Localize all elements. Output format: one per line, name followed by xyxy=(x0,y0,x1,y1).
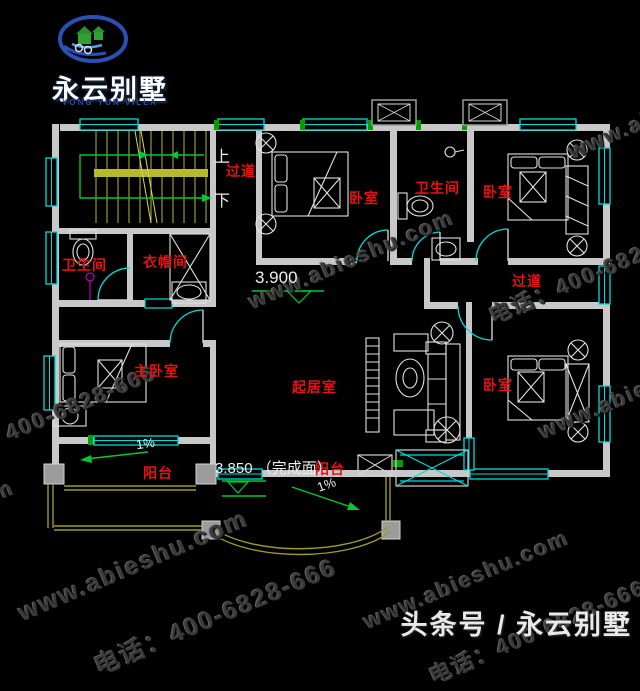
room-label-corridor-top: 过道 xyxy=(226,161,256,181)
level-mark-balcony: 3.850 （完成面） xyxy=(215,457,332,478)
vent-boxes xyxy=(358,450,468,486)
room-label-living-room: 起居室 xyxy=(292,377,337,397)
brand-logo: 永云别墅 YONG YUN VILLA xyxy=(30,10,190,110)
logo-emblem-icon xyxy=(30,10,190,68)
screenshot-canvas: www.abieshu.com 电话：400-6828-666 电话：400-6… xyxy=(0,0,640,643)
doors xyxy=(98,229,508,343)
room-label-balcony-left: 阳台 xyxy=(143,463,173,483)
stair-up-label: 上 xyxy=(214,143,230,167)
room-label-cloakroom: 衣帽间 xyxy=(143,252,188,272)
footer-bar: 头条号 / 永云别墅 xyxy=(0,600,640,643)
room-label-bedroom-top: 卧室 xyxy=(349,188,379,208)
room-label-bedroom-top-right: 卧室 xyxy=(483,182,513,202)
room-label-corridor-right: 过道 xyxy=(512,271,542,291)
slope-label-left: 1% xyxy=(135,435,156,452)
room-label-bathroom-left: 卫生间 xyxy=(62,255,107,275)
level-mark-upper: 3.900 xyxy=(255,268,298,288)
staircase xyxy=(94,131,208,223)
brand-name-en: YONG YUN VILLA xyxy=(30,98,190,107)
room-label-master-bedroom: 主卧室 xyxy=(134,361,179,381)
flue-boxes xyxy=(372,100,507,125)
room-label-bathroom-top: 卫生间 xyxy=(415,178,460,198)
stair-down-label: 下 xyxy=(214,187,230,211)
balcony-railings xyxy=(48,477,390,555)
footer-account-name: 头条号 / 永云别墅 xyxy=(400,603,632,642)
room-label-bedroom-bottom-right: 卧室 xyxy=(483,375,513,395)
